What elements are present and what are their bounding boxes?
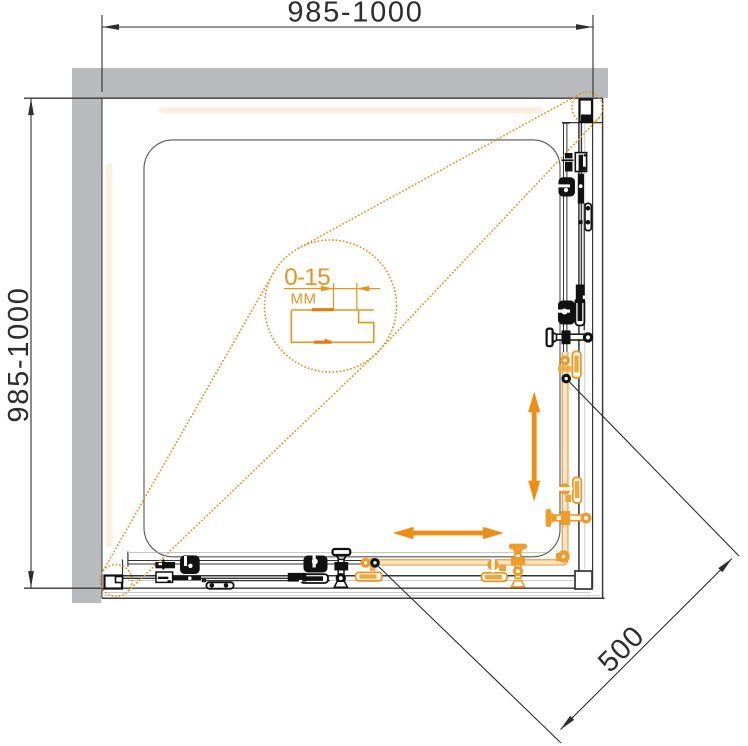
svg-text:0-15: 0-15 [284, 264, 330, 291]
svg-text:985-1000: 985-1000 [3, 286, 35, 422]
svg-text:985-1000: 985-1000 [287, 0, 423, 29]
svg-text:MM: MM [291, 291, 317, 308]
